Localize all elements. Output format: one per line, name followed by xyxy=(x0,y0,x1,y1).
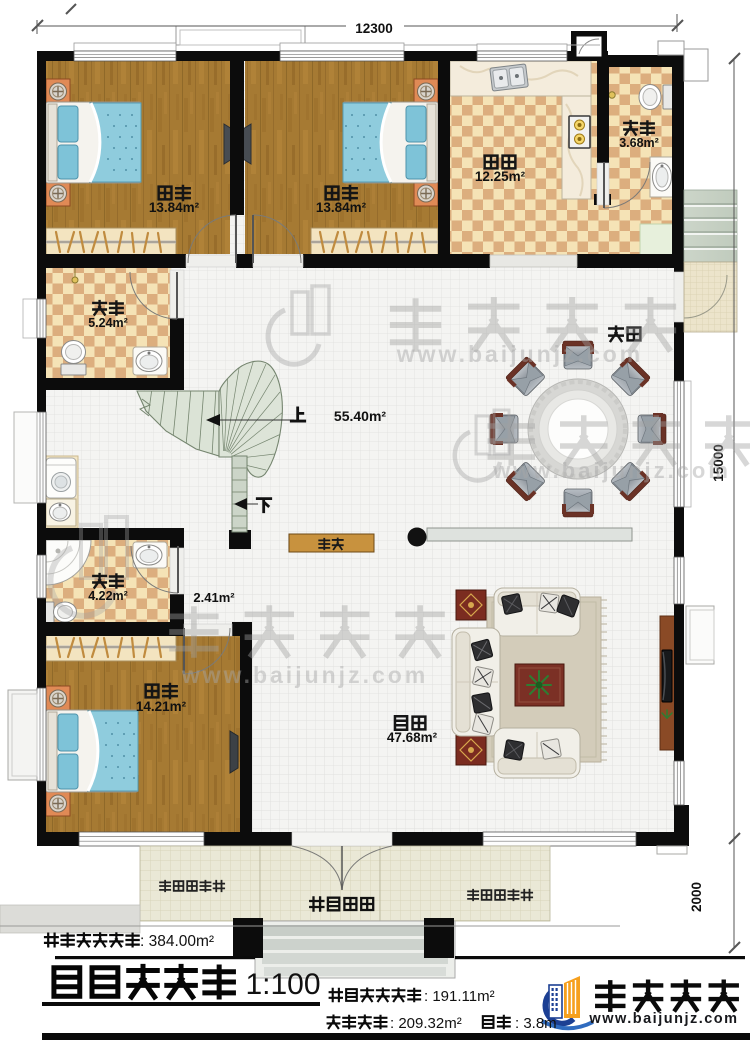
svg-text:: 191.11m²: : 191.11m² xyxy=(424,988,495,1005)
svg-text:: 209.32m²: : 209.32m² xyxy=(390,1015,462,1032)
svg-text:12300: 12300 xyxy=(355,21,393,36)
svg-text:13.84m²: 13.84m² xyxy=(149,200,200,215)
svg-text:1:100: 1:100 xyxy=(245,968,320,1001)
svg-text:www.baijunjz.com: www.baijunjz.com xyxy=(492,458,731,483)
svg-text:14.21m²: 14.21m² xyxy=(136,699,187,714)
svg-text:www.baijunjz.com: www.baijunjz.com xyxy=(181,662,429,688)
svg-text:2000: 2000 xyxy=(689,882,704,912)
svg-text:www.baijunjz.com: www.baijunjz.com xyxy=(396,341,644,367)
svg-text:5.24m²: 5.24m² xyxy=(88,316,128,330)
svg-text:55.40m²: 55.40m² xyxy=(334,408,386,424)
svg-text:3.68m²: 3.68m² xyxy=(619,136,659,150)
svg-text:: 384.00m²: : 384.00m² xyxy=(140,933,214,950)
svg-text:13.84m²: 13.84m² xyxy=(316,200,367,215)
svg-text:12.25m²: 12.25m² xyxy=(475,169,526,184)
svg-text:47.68m²: 47.68m² xyxy=(387,730,438,745)
svg-text:www.baijunjz.com: www.baijunjz.com xyxy=(588,1011,738,1027)
svg-text:2.41m²: 2.41m² xyxy=(193,590,235,605)
svg-text:: 3.8m: : 3.8m xyxy=(515,1015,557,1032)
svg-text:4.22m²: 4.22m² xyxy=(88,589,128,603)
